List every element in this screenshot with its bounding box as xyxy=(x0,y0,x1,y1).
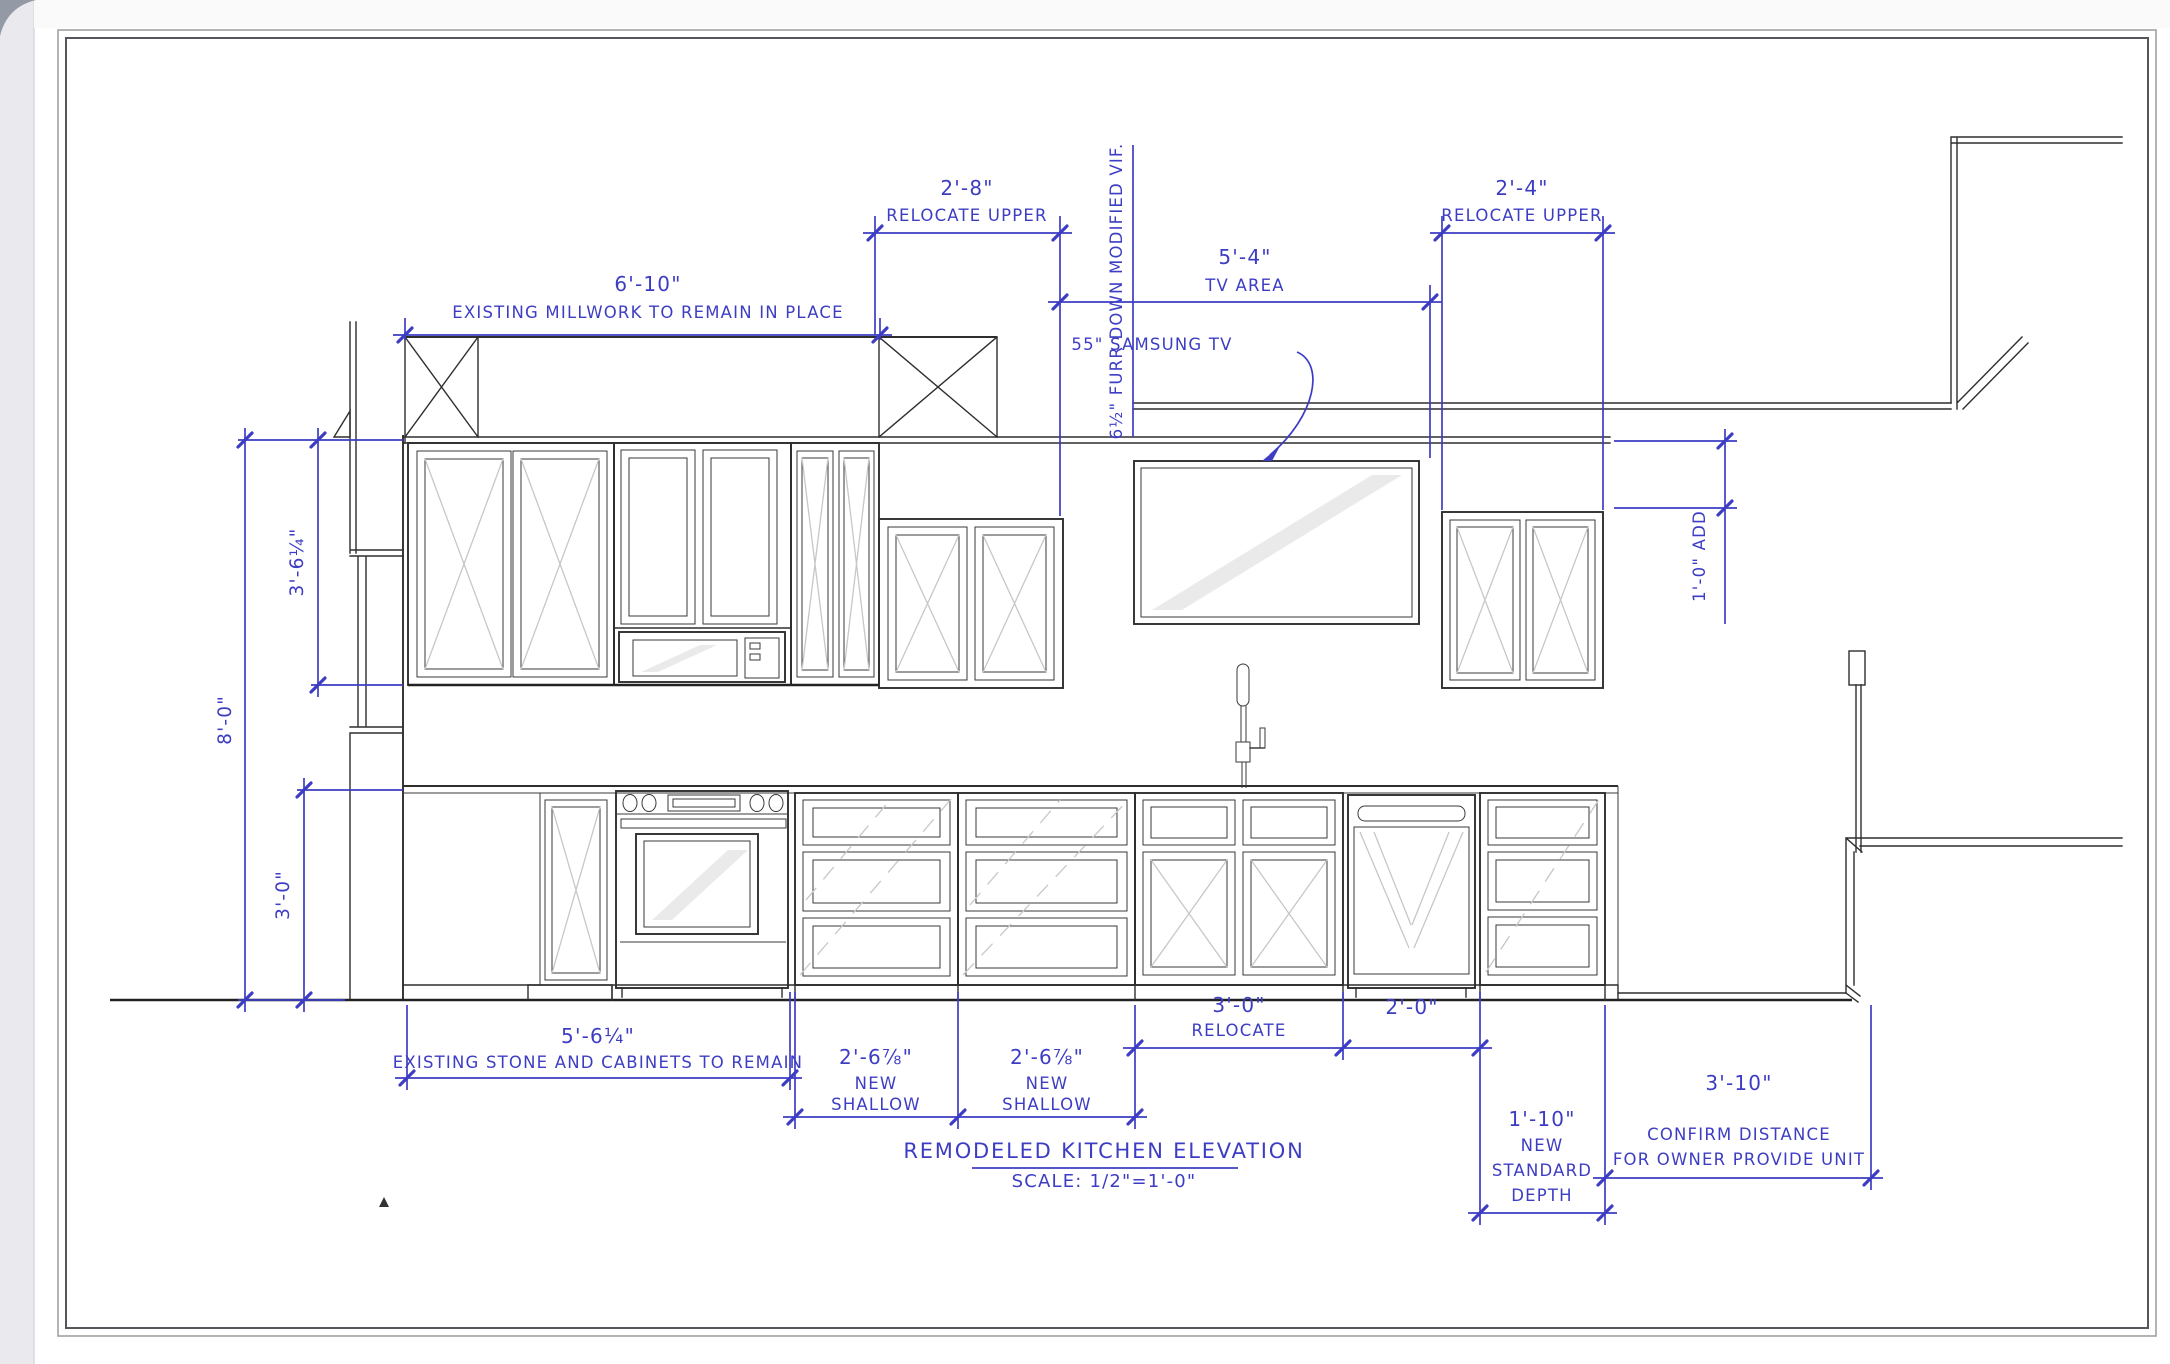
dim-relocate-left-value: 2'-8" xyxy=(940,176,993,200)
furr-down-note: 6½" FURR DOWN MODIFIED VIF. xyxy=(1107,143,1126,440)
dim-new-shallow-left-value: 2'-6⅞" xyxy=(839,1045,913,1069)
dim-new-shallow-right-l2: NEW xyxy=(1026,1074,1069,1093)
dim-new-shallow-right-value: 2'-6⅞" xyxy=(1010,1045,1084,1069)
tv-note: 55" SAMSUNG TV xyxy=(1071,335,1232,354)
dim-standard-depth-value: 1'-10" xyxy=(1508,1107,1575,1131)
dim-dishwasher-value: 2'-0" xyxy=(1385,995,1438,1019)
dim-relocate-right-value: 2'-4" xyxy=(1495,176,1548,200)
dim-relocate-right-label: RELOCATE UPPER xyxy=(1441,206,1602,225)
viewer-left-strip xyxy=(0,0,34,1364)
dim-tv-area-label: TV AREA xyxy=(1204,276,1284,295)
dim-sink-relocate-label: RELOCATE xyxy=(1191,1021,1286,1040)
dim-new-shallow-right-l3: SHALLOW xyxy=(1002,1095,1092,1114)
dim-new-shallow-left-l3: SHALLOW xyxy=(831,1095,921,1114)
drawing-viewer: 6'-10" EXISTING MILLWORK TO REMAIN IN PL… xyxy=(0,0,2170,1364)
dim-owner-unit-l3: FOR OWNER PROVIDE UNIT xyxy=(1613,1150,1865,1169)
dim-new-shallow-left-l2: NEW xyxy=(855,1074,898,1093)
drawing-scale: SCALE: 1/2"=1'-0" xyxy=(1012,1171,1197,1192)
dim-relocate-left-label: RELOCATE UPPER xyxy=(886,206,1047,225)
dim-ceiling-height: 8'-0" xyxy=(215,695,236,745)
dim-millwork-value: 6'-10" xyxy=(614,272,681,296)
dim-standard-depth-l2: NEW xyxy=(1521,1136,1564,1155)
kitchen-elevation-sheet: 6'-10" EXISTING MILLWORK TO REMAIN IN PL… xyxy=(0,0,2170,1364)
dim-base-height: 3'-0" xyxy=(273,870,294,920)
dim-existing-base-label: EXISTING STONE AND CABINETS TO REMAIN xyxy=(393,1053,803,1072)
dim-upper-cab-height: 3'-6¼" xyxy=(287,528,308,597)
dim-tv-area-value: 5'-4" xyxy=(1218,245,1271,269)
dim-owner-unit-value: 3'-10" xyxy=(1705,1071,1772,1095)
dim-standard-depth-l4: DEPTH xyxy=(1511,1186,1573,1205)
dim-millwork-label: EXISTING MILLWORK TO REMAIN IN PLACE xyxy=(452,303,844,322)
drawing-title: REMODELED KITCHEN ELEVATION xyxy=(903,1139,1304,1163)
dim-existing-base-value: 5'-6¼" xyxy=(561,1024,635,1048)
dim-standard-depth-l3: STANDARD xyxy=(1492,1161,1592,1180)
dim-owner-unit-l2: CONFIRM DISTANCE xyxy=(1647,1125,1831,1144)
add-upper-note: 1'-0" ADD xyxy=(1690,510,1709,602)
dim-sink-relocate-value: 3'-0" xyxy=(1212,993,1265,1017)
